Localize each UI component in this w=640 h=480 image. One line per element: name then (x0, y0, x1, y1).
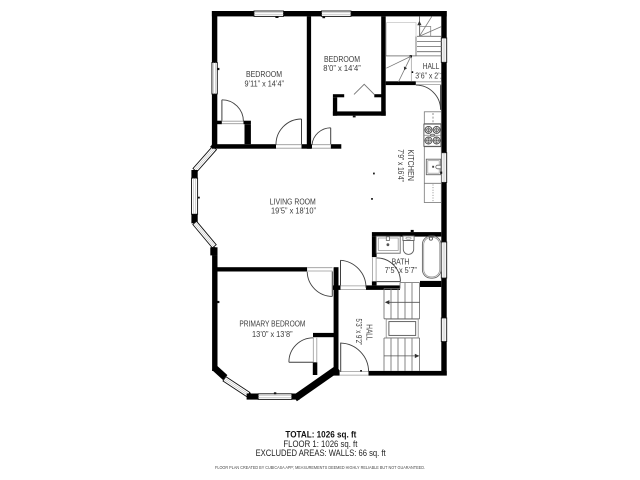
svg-text:9’11” x 14’4”: 9’11” x 14’4” (244, 80, 284, 89)
svg-text:PRIMARY BEDROOM: PRIMARY BEDROOM (239, 320, 305, 329)
svg-text:LIVING ROOM: LIVING ROOM (270, 197, 316, 206)
svg-text:7’9” x 16’4”: 7’9” x 16’4” (396, 149, 405, 182)
svg-text:EXCLUDED AREAS: WALLS: 66 sq.: EXCLUDED AREAS: WALLS: 66 sq. ft (256, 447, 386, 458)
svg-text:5’3” x 9’2”: 5’3” x 9’2” (354, 319, 363, 346)
svg-text:FLOOR PLAN CREATED BY CUBICASA: FLOOR PLAN CREATED BY CUBICASA APP; MEAS… (215, 465, 425, 470)
svg-text:KITCHEN: KITCHEN (406, 149, 415, 181)
svg-text:19’5” x 18’10”: 19’5” x 18’10” (271, 207, 316, 216)
svg-text:7’5” x 5’7”: 7’5” x 5’7” (385, 266, 417, 275)
svg-text:8’0” x 14’4”: 8’0” x 14’4” (323, 64, 361, 73)
svg-text:HALL: HALL (364, 324, 373, 341)
svg-text:BEDROOM: BEDROOM (324, 55, 360, 64)
svg-text:13’0” x 13’8”: 13’0” x 13’8” (252, 330, 293, 339)
svg-text:BEDROOM: BEDROOM (246, 70, 282, 79)
svg-text:HALL: HALL (423, 62, 440, 71)
